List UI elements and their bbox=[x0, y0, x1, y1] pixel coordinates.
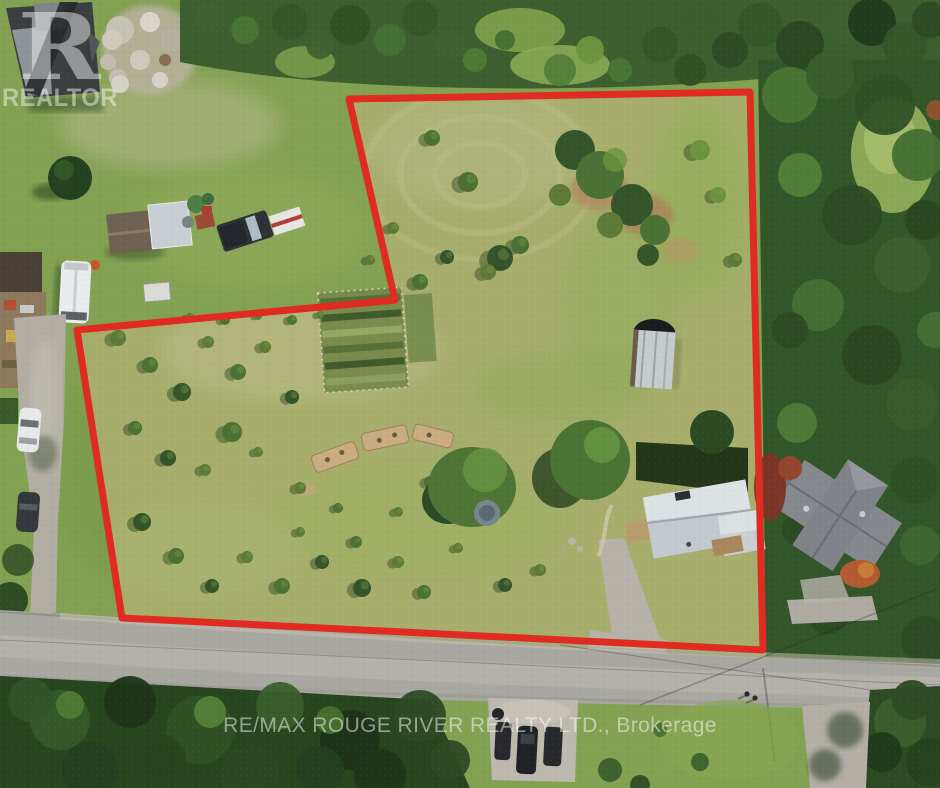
aerial-photo: R REALTOR RE/MAX ROUGE RIVER REALTY LTD.… bbox=[0, 0, 940, 788]
aerial-scene bbox=[0, 0, 940, 788]
photo-grain bbox=[0, 0, 940, 788]
